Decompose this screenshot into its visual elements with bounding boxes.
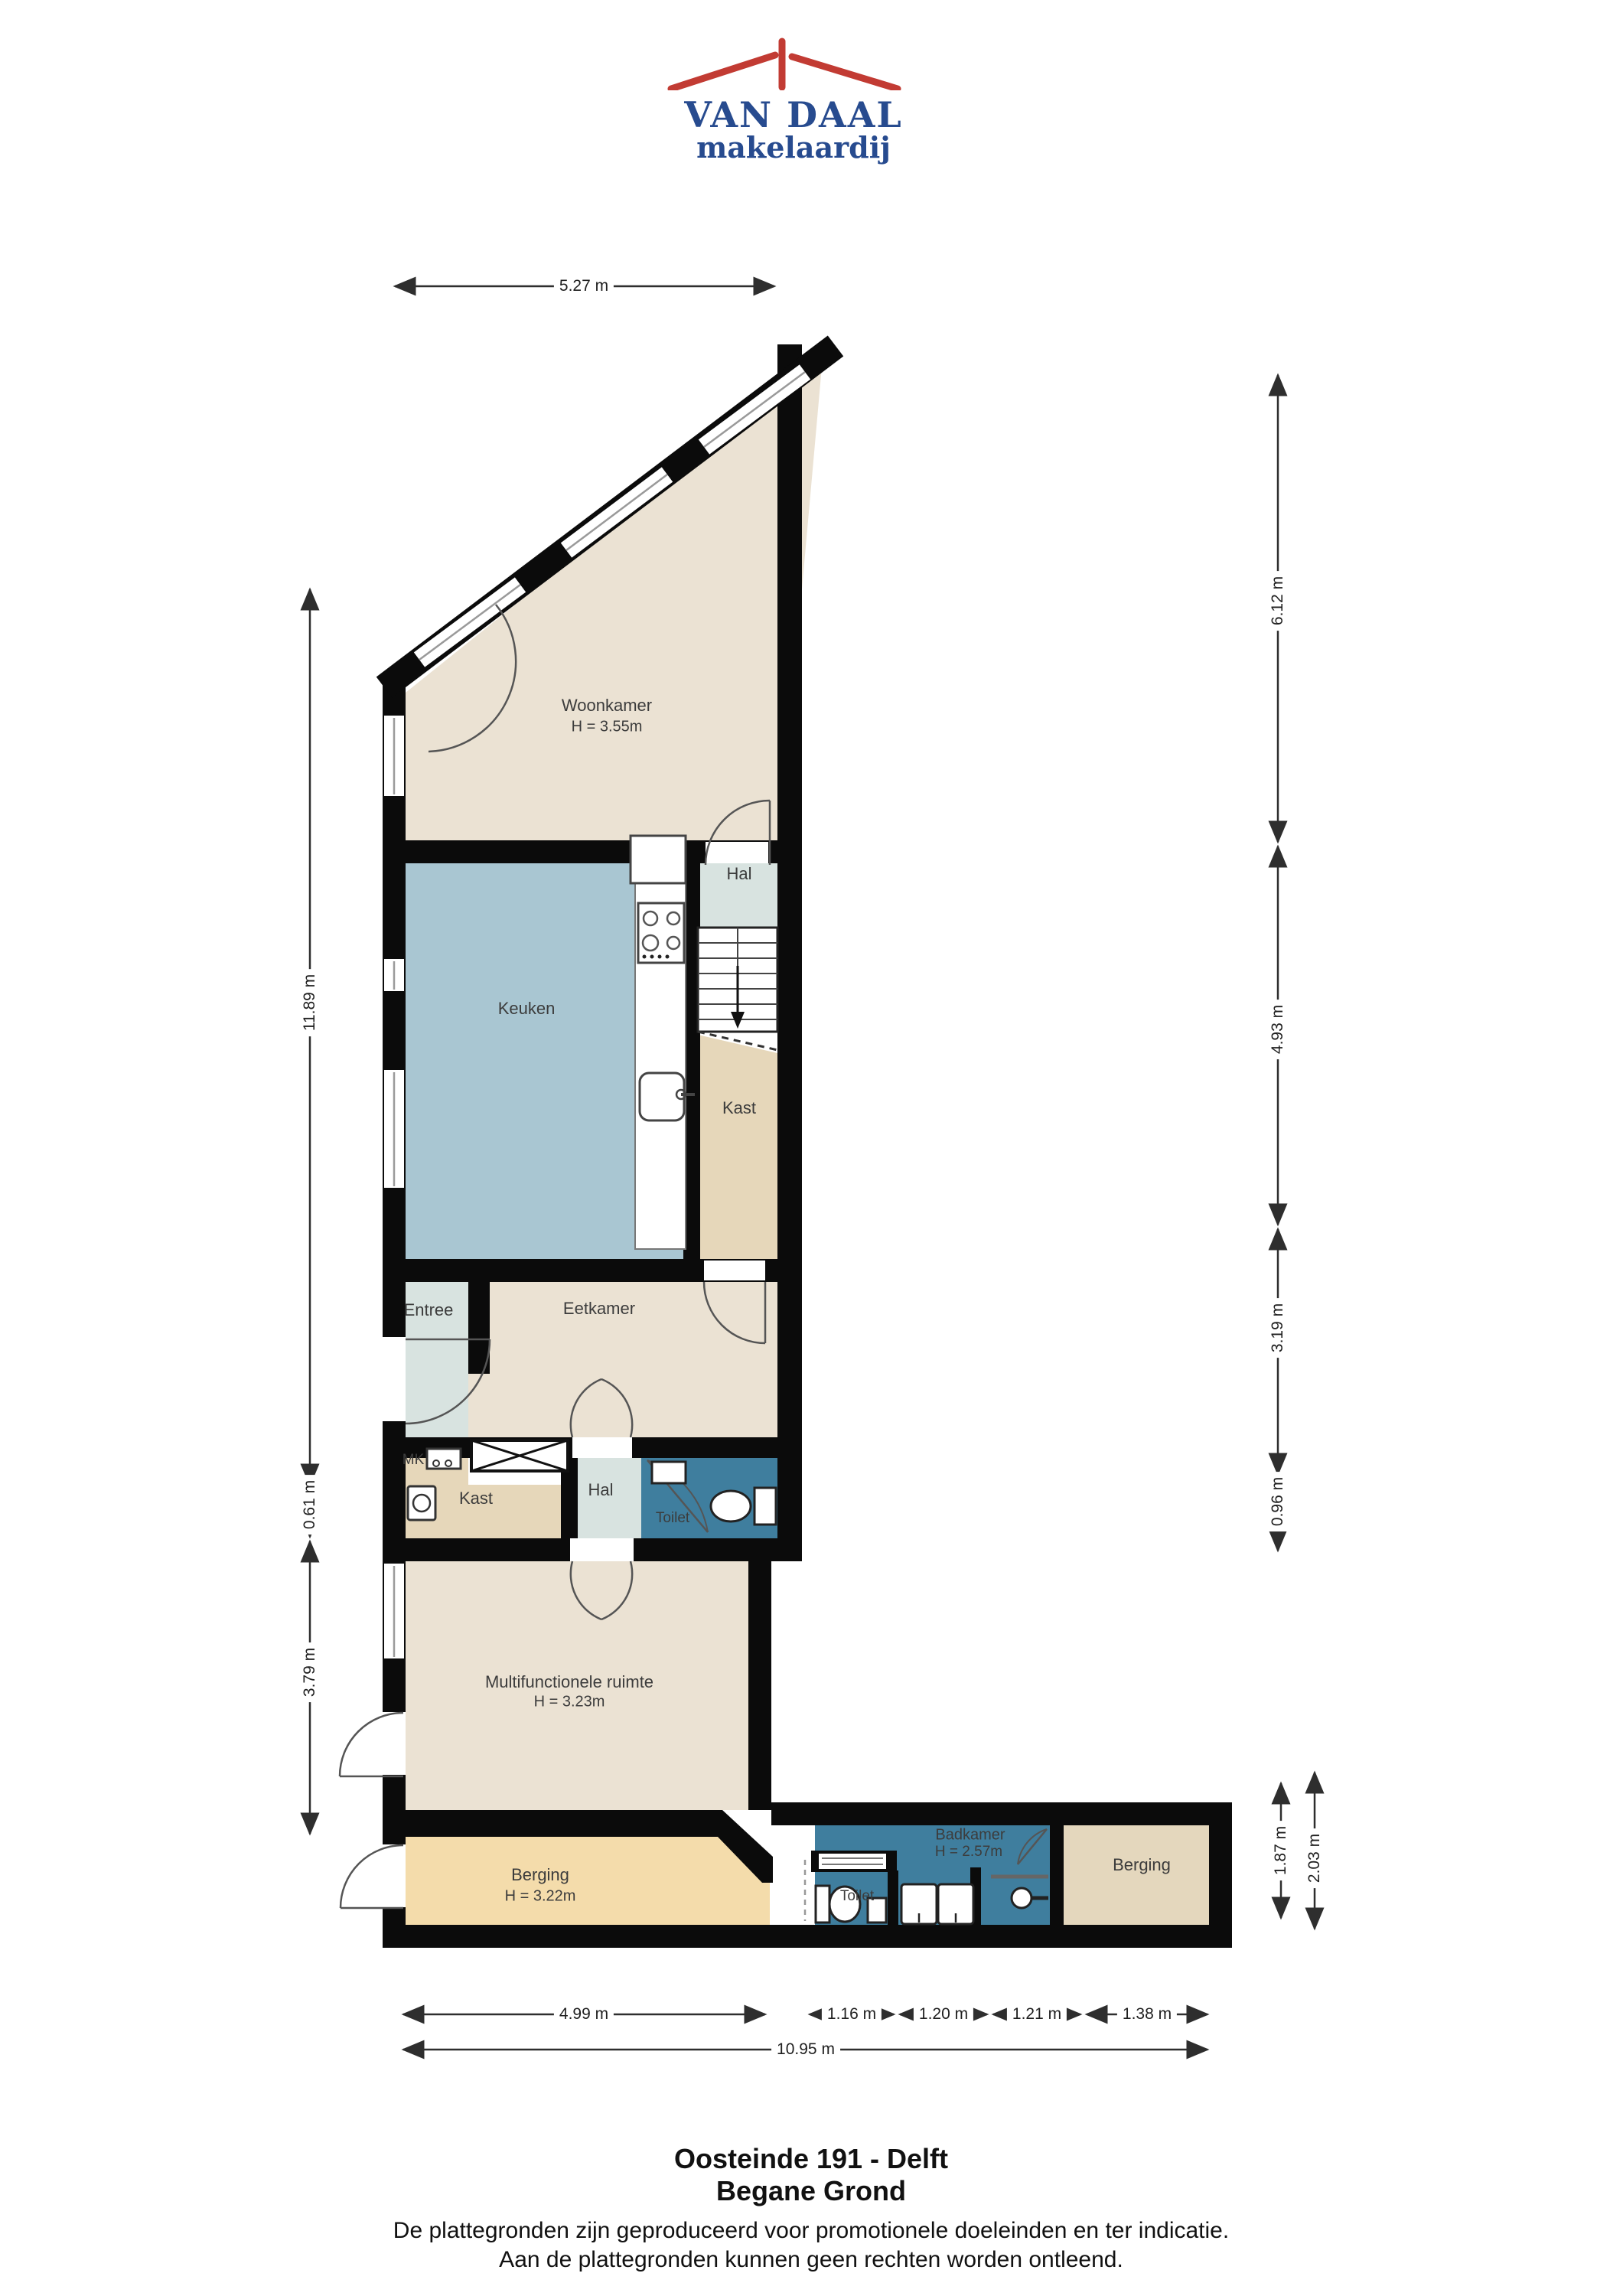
label-berging-left: Berging xyxy=(511,1865,569,1885)
room-berging-left xyxy=(406,1835,770,1925)
page-title-address: Oosteinde 191 - Delft xyxy=(674,2143,948,2175)
disclaimer-line-1: De plattegronden zijn geproduceerd voor … xyxy=(393,2218,1229,2244)
kitchen-cabinet-icon xyxy=(631,836,686,883)
dim-bottom-3: 1.21 m xyxy=(1007,2004,1067,2024)
label-hal-top: Hal xyxy=(726,864,751,884)
page-title-floor: Begane Grond xyxy=(716,2175,906,2207)
label-toilet-bottom: Toilet xyxy=(840,1888,874,1905)
toilet-cistern-icon xyxy=(754,1488,776,1525)
dim-top: 5.27 m xyxy=(554,276,614,296)
washing-machine-icon xyxy=(408,1486,435,1520)
stove-icon xyxy=(638,903,684,963)
label-keuken: Keuken xyxy=(498,999,556,1019)
label-berging-left-height: H = 3.22m xyxy=(505,1888,576,1906)
dim-right-5: 2.03 m xyxy=(1305,1828,1325,1888)
floorplan-page: VAN DAAL makelaardij xyxy=(0,0,1623,2296)
dim-bottom-total: 10.95 m xyxy=(771,2040,840,2060)
label-badkamer-height: H = 2.57m xyxy=(935,1844,1002,1861)
shower-head-icon xyxy=(1012,1888,1031,1908)
label-berging-right: Berging xyxy=(1113,1855,1171,1875)
label-woonkamer-height: H = 3.55m xyxy=(572,719,643,736)
dim-left-0: 11.89 m xyxy=(300,969,320,1036)
label-multifunctioneel-height: H = 3.23m xyxy=(534,1694,605,1711)
dim-bottom-4: 1.38 m xyxy=(1117,2004,1177,2024)
toilet-cistern-icon xyxy=(816,1886,829,1923)
dim-bottom-0: 4.99 m xyxy=(554,2004,614,2024)
label-badkamer: Badkamer xyxy=(935,1827,1005,1844)
label-multifunctioneel: Multifunctionele ruimte xyxy=(485,1672,653,1692)
label-eetkamer: Eetkamer xyxy=(563,1299,635,1319)
label-entree: Entree xyxy=(404,1300,454,1320)
pocket-door-icon xyxy=(819,1854,886,1869)
label-toilet-mid: Toilet xyxy=(656,1510,689,1527)
dim-right-1: 4.93 m xyxy=(1268,1000,1288,1059)
label-woonkamer: Woonkamer xyxy=(562,696,652,716)
closet-x-icon xyxy=(471,1440,568,1471)
toilet-bowl-icon xyxy=(711,1491,751,1521)
dim-bottom-1: 1.16 m xyxy=(822,2004,882,2024)
dim-left-1: 0.61 m xyxy=(300,1475,320,1534)
label-kast-top: Kast xyxy=(722,1098,756,1118)
disclaimer-line-2: Aan de plattegronden kunnen geen rechten… xyxy=(499,2247,1123,2273)
kitchen-fixtures xyxy=(631,836,695,1249)
dim-bottom-2: 1.20 m xyxy=(914,2004,973,2024)
floorplan-drawing xyxy=(0,0,1623,2296)
label-hal-mid: Hal xyxy=(588,1480,613,1500)
dim-right-0: 6.12 m xyxy=(1268,571,1288,631)
dim-left-2: 3.79 m xyxy=(300,1642,320,1702)
room-kast-top xyxy=(698,1035,777,1259)
meter-cabinet-icon xyxy=(427,1449,461,1469)
dim-right-4: 1.87 m xyxy=(1271,1821,1291,1880)
hand-basin-icon xyxy=(652,1462,686,1483)
label-mk: MK xyxy=(402,1452,425,1469)
dim-right-2: 3.19 m xyxy=(1268,1298,1288,1358)
room-berging-right xyxy=(1064,1825,1209,1925)
dim-right-3: 0.96 m xyxy=(1268,1472,1288,1531)
label-kast-mid: Kast xyxy=(459,1489,493,1508)
staircase xyxy=(698,928,777,1050)
